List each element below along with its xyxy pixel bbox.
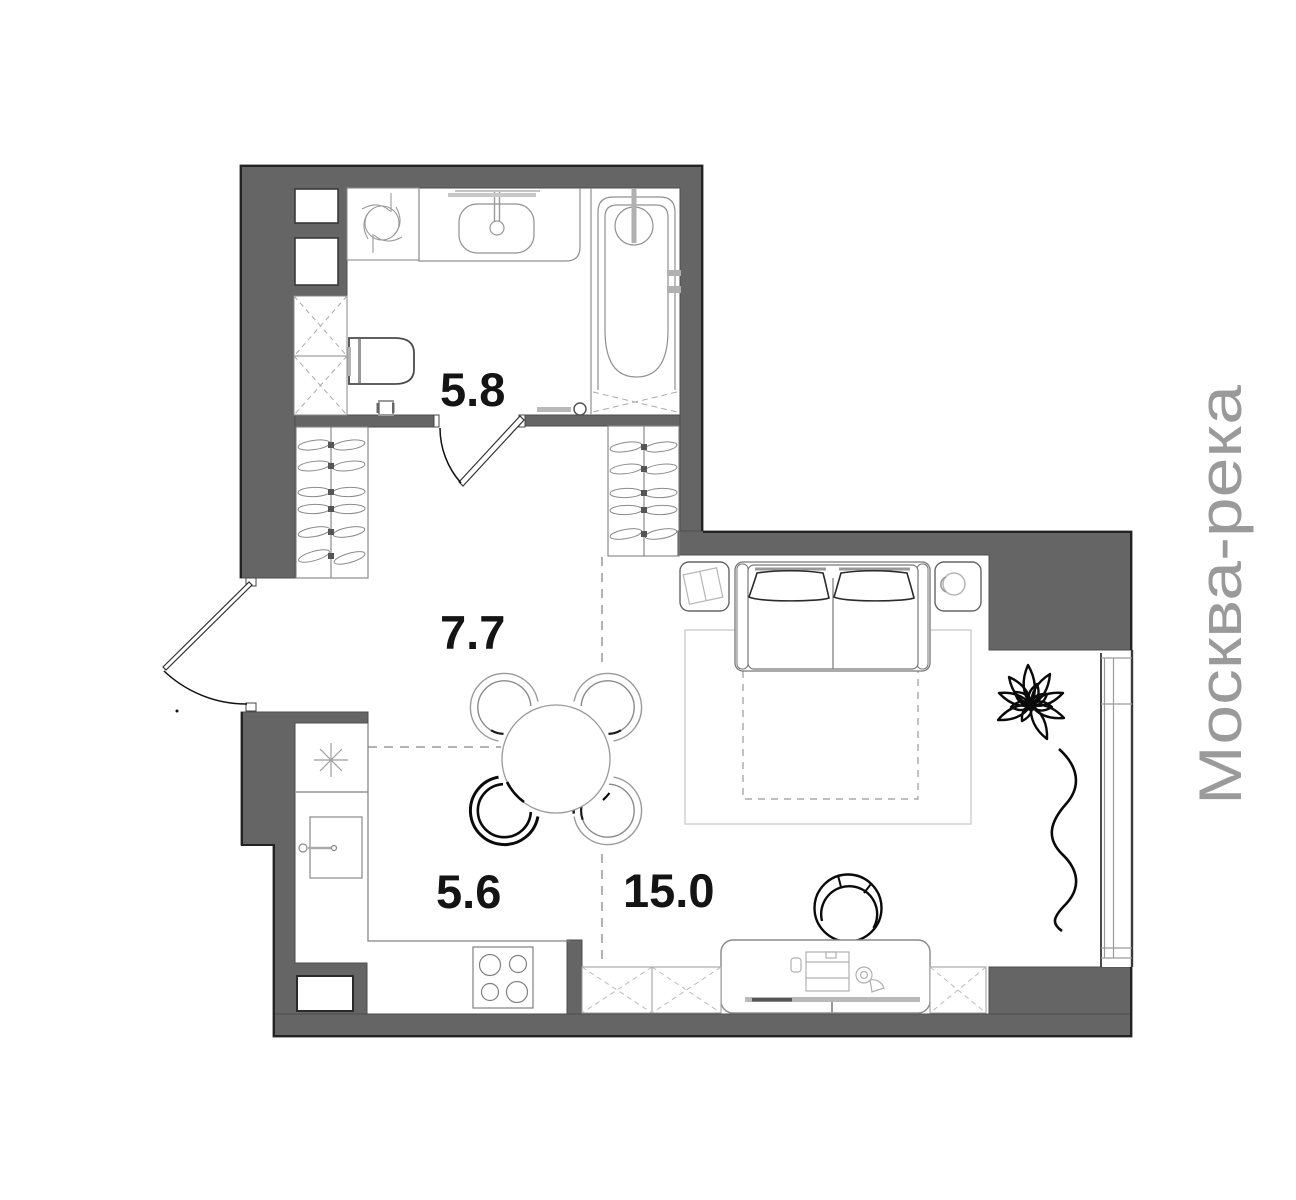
svg-text:15.0: 15.0 [623,864,714,917]
svg-text:Москва-река: Москва-река [1187,384,1254,805]
svg-text:5.6: 5.6 [436,865,501,918]
svg-text:7.7: 7.7 [440,606,505,659]
svg-text:5.8: 5.8 [440,363,505,416]
